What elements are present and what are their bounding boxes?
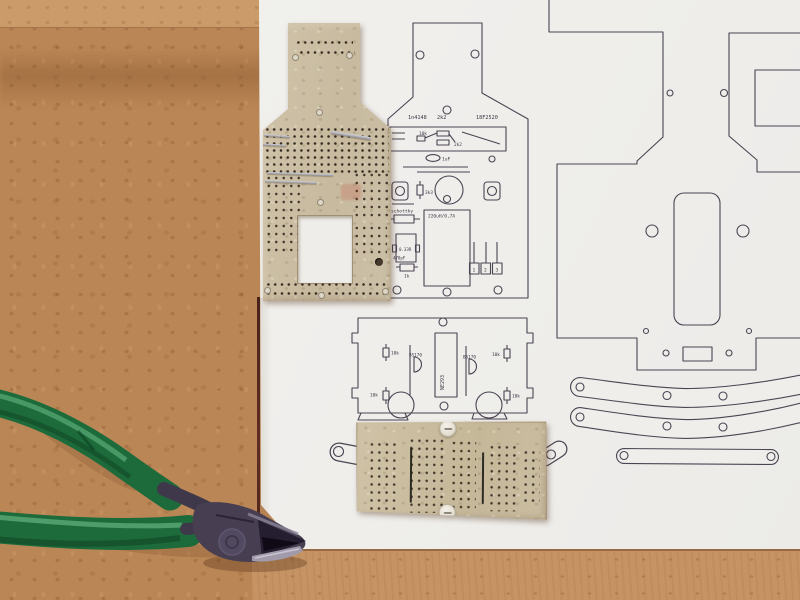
wire-cutters <box>0 0 800 600</box>
pivot-boss <box>219 529 245 555</box>
workbench-photo: 1n4148 2k2 18F2520 10k 2k2 1uF 3k3 schot… <box>0 0 800 600</box>
